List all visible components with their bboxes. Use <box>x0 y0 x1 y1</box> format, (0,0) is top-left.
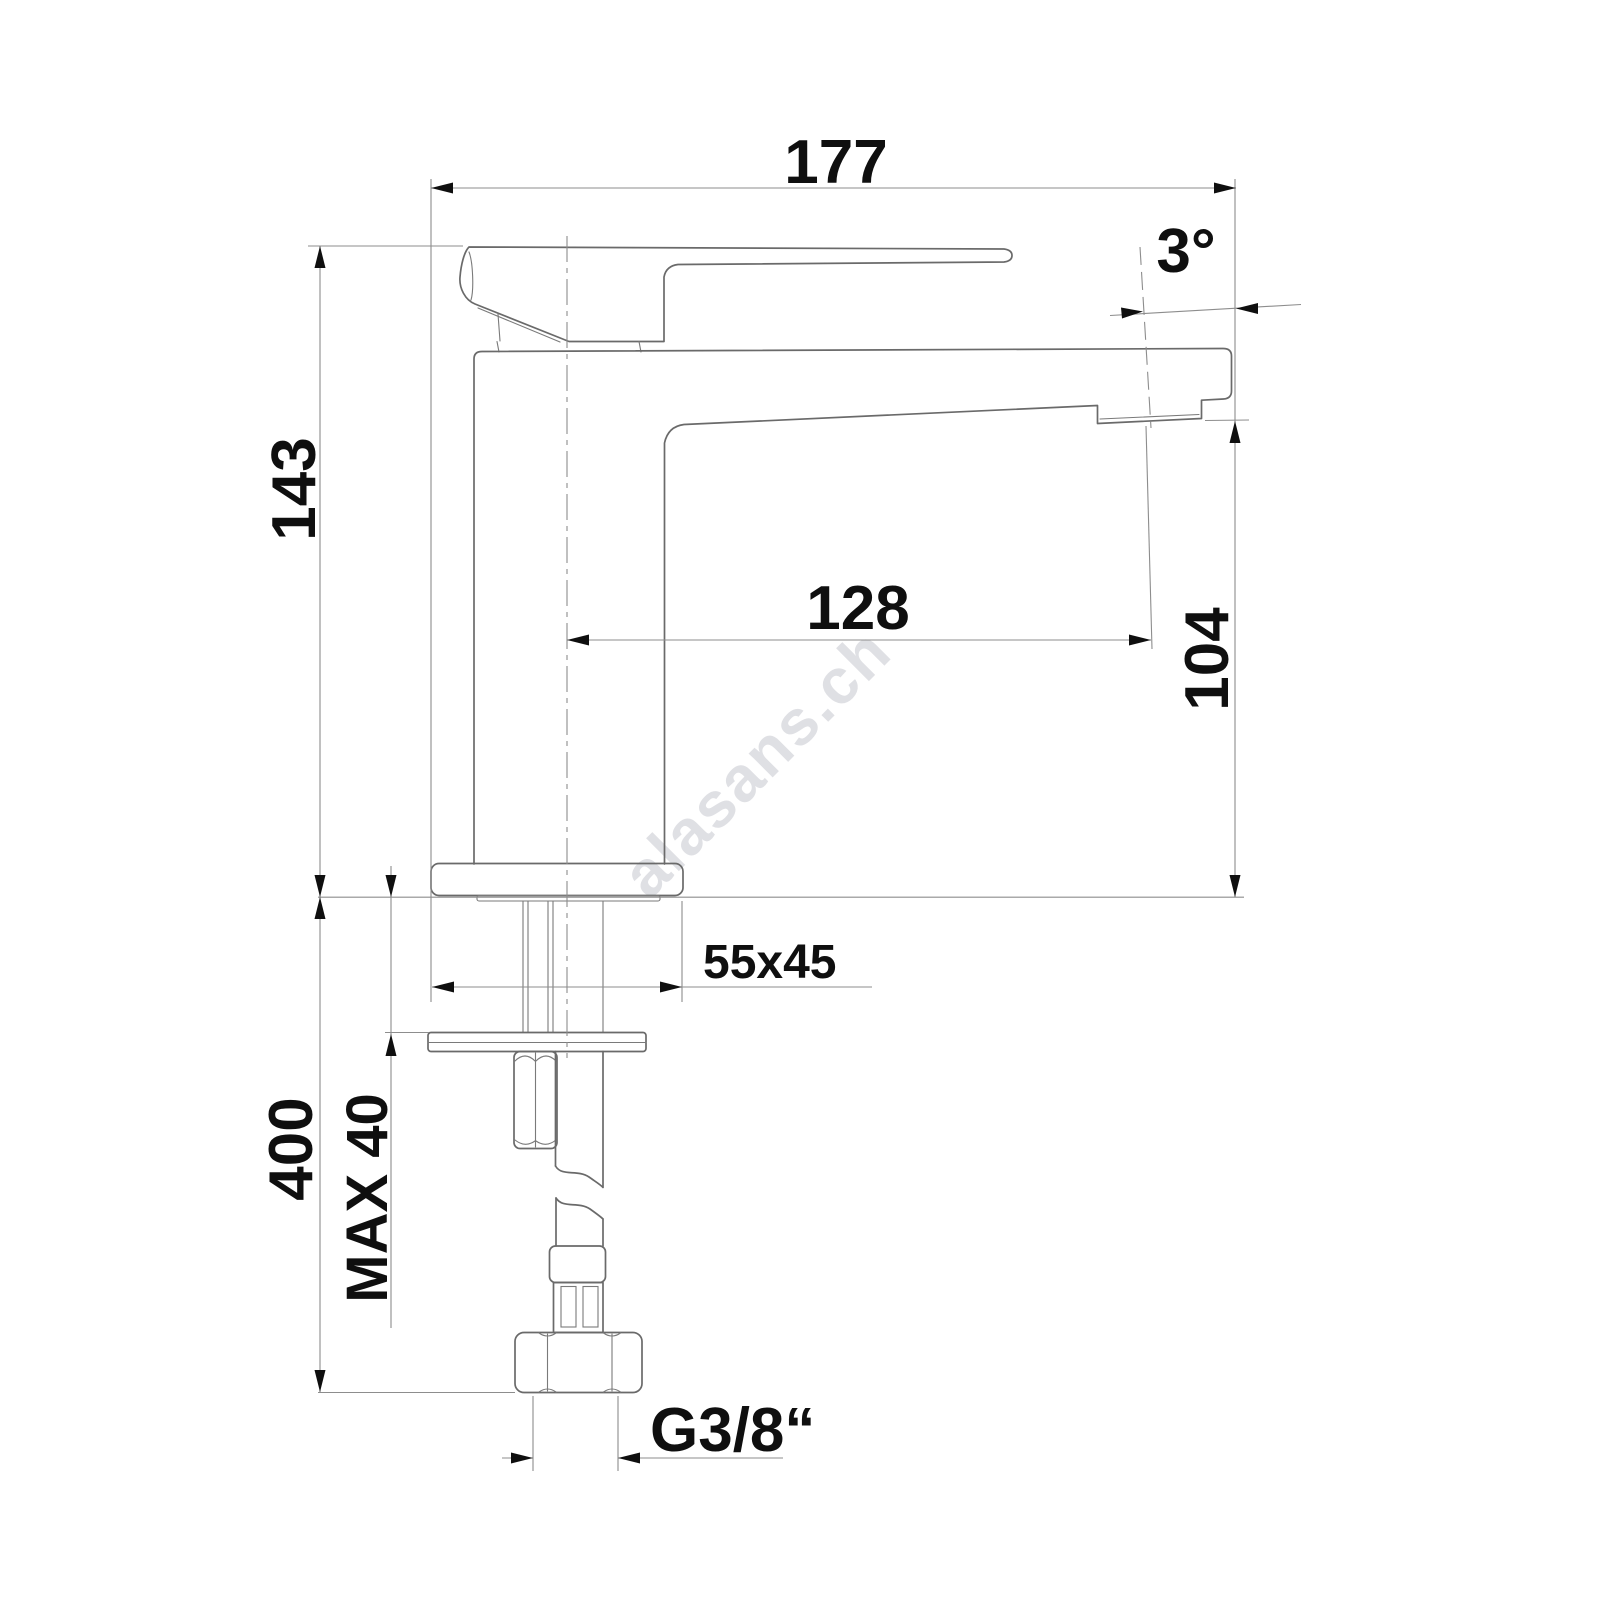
flex-hose <box>556 1052 604 1247</box>
shank-rods <box>523 901 603 1033</box>
faucet-outline <box>428 247 1232 1393</box>
handle-lever <box>460 247 1012 342</box>
handle-chamfer-line <box>478 308 560 342</box>
handle-back-lens <box>469 252 473 300</box>
dim-g38-label: G3/8“ <box>650 1396 815 1465</box>
dimension-arrows <box>315 183 1259 1464</box>
handle-tick-1 <box>498 314 500 341</box>
drawing-svg: alasans.ch <box>0 0 1600 1600</box>
dim-104-label: 104 <box>1173 607 1242 711</box>
faucet-technical-drawing: alasans.ch <box>0 0 1600 1600</box>
handle-tick-2 <box>497 342 499 353</box>
watermark-text: alasans.ch <box>608 614 904 910</box>
dimension-lines <box>308 179 1301 1471</box>
crimp-collar <box>550 1246 606 1283</box>
dim-max40-label: MAX 40 <box>335 1093 400 1303</box>
hose-connector <box>554 1283 604 1333</box>
hex-nut <box>515 1333 642 1393</box>
dim-400-label: 400 <box>257 1097 326 1200</box>
aerator-inner-line <box>1100 415 1199 420</box>
dim-177-label: 177 <box>784 128 887 197</box>
dim-128-label: 128 <box>806 574 909 643</box>
dim-3deg-label: 3° <box>1156 217 1215 286</box>
dim-55x45-label: 55x45 <box>703 936 836 989</box>
spout-axis-line <box>1140 247 1151 428</box>
mounting-nut <box>514 1052 557 1149</box>
dim-143-label: 143 <box>260 437 329 540</box>
